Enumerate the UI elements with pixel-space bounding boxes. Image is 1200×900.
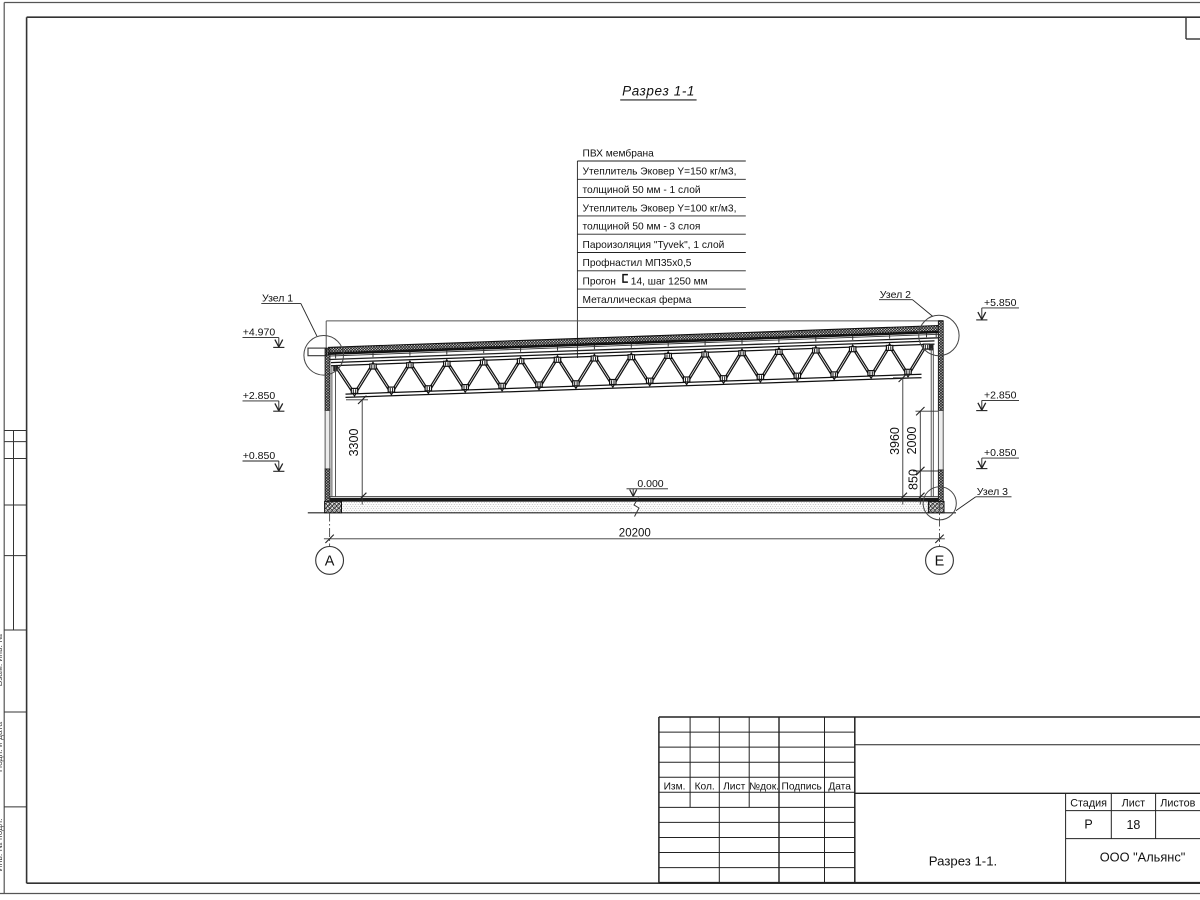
svg-text:Взам. инв. №: Взам. инв. № xyxy=(0,634,4,687)
svg-text:+5.850: +5.850 xyxy=(984,297,1017,309)
svg-text:Лист: Лист xyxy=(723,782,745,793)
svg-text:850: 850 xyxy=(907,469,921,490)
svg-text:Утеплитель Эковер Y=100 кг/м3,: Утеплитель Эковер Y=100 кг/м3, xyxy=(583,203,737,214)
svg-text:Узел 1: Узел 1 xyxy=(262,293,293,305)
svg-text:Утеплитель Эковер Y=150 кг/м3,: Утеплитель Эковер Y=150 кг/м3, xyxy=(583,167,737,178)
svg-text:Прогон: Прогон xyxy=(583,277,616,288)
svg-text:+2.850: +2.850 xyxy=(984,389,1017,401)
svg-text:№док.: №док. xyxy=(749,782,779,793)
svg-text:Подп. и дата: Подп. и дата xyxy=(0,722,4,772)
svg-text:0.000: 0.000 xyxy=(637,478,663,490)
svg-text:ПВХ мембрана: ПВХ мембрана xyxy=(583,147,655,159)
svg-text:Е: Е xyxy=(935,554,945,570)
svg-text:толщиной 50 мм - 1 слой: толщиной 50 мм - 1 слой xyxy=(583,185,701,196)
svg-text:Кол.: Кол. xyxy=(695,782,715,793)
svg-text:3300: 3300 xyxy=(347,429,361,457)
svg-text:+4.970: +4.970 xyxy=(243,327,276,339)
svg-text:Инв. № подл.: Инв. № подл. xyxy=(0,819,4,872)
svg-text:Металлическая ферма: Металлическая ферма xyxy=(583,294,692,306)
svg-text:ООО "Альянс": ООО "Альянс" xyxy=(1100,850,1186,865)
svg-text:Узел 2: Узел 2 xyxy=(880,289,911,301)
svg-text:Пароизоляция "Tyvek", 1 слой: Пароизоляция "Tyvek", 1 слой xyxy=(583,240,725,251)
svg-text:Подпись: Подпись xyxy=(782,782,822,793)
svg-text:А: А xyxy=(325,554,335,570)
svg-text:3960: 3960 xyxy=(888,427,902,455)
svg-text:18: 18 xyxy=(1126,818,1140,832)
svg-text:Узел 3: Узел 3 xyxy=(977,486,1008,498)
svg-text:Дата: Дата xyxy=(828,782,851,793)
svg-text:20200: 20200 xyxy=(619,528,651,540)
svg-text:Изм.: Изм. xyxy=(664,782,686,793)
svg-text:+0.850: +0.850 xyxy=(243,450,276,462)
svg-text:Стадия: Стадия xyxy=(1070,798,1107,810)
svg-text:+2.850: +2.850 xyxy=(243,390,276,402)
svg-text:14, шаг 1250 мм: 14, шаг 1250 мм xyxy=(631,277,708,288)
svg-text:Лист: Лист xyxy=(1122,798,1146,810)
svg-text:+0.850: +0.850 xyxy=(984,447,1017,459)
svg-text:толщиной 50 мм - 3 слоя: толщиной 50 мм - 3 слоя xyxy=(583,222,701,233)
svg-text:Р: Р xyxy=(1084,818,1092,832)
svg-text:Разрез 1-1.: Разрез 1-1. xyxy=(929,854,997,869)
svg-text:Разрез 1-1: Разрез 1-1 xyxy=(622,83,695,98)
svg-text:Листов: Листов xyxy=(1160,798,1195,810)
svg-text:2000: 2000 xyxy=(905,427,919,455)
svg-text:Профнастил МП35х0,5: Профнастил МП35х0,5 xyxy=(583,257,692,269)
